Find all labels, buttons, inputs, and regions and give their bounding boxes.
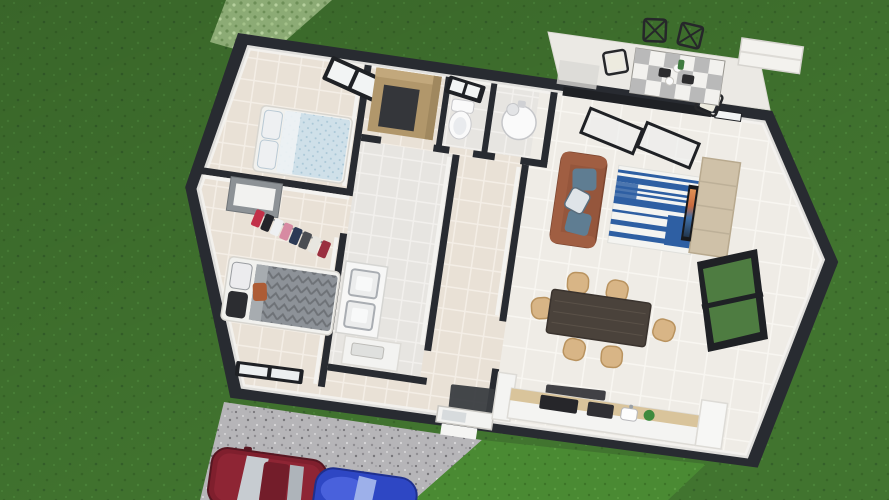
checker-cell bbox=[693, 57, 710, 74]
table-cup bbox=[665, 77, 674, 86]
kitchen-tall-cabinet bbox=[695, 400, 727, 449]
bed2-cushion-orange bbox=[253, 283, 268, 301]
checker-cell bbox=[630, 78, 647, 95]
dining-chair bbox=[600, 346, 623, 369]
floorplan-render bbox=[0, 0, 889, 500]
wardrobe-opening bbox=[378, 85, 420, 132]
bed2-pillow-white bbox=[229, 262, 253, 291]
vanity-sink-1-basin bbox=[355, 276, 373, 292]
table-item-dark bbox=[658, 68, 671, 79]
kitchen-sink bbox=[620, 407, 638, 421]
bed1-pillow-1 bbox=[261, 110, 283, 140]
corner-window bbox=[697, 249, 768, 352]
outdoor-chair-cushion bbox=[607, 54, 624, 71]
checker-cell bbox=[706, 74, 723, 91]
checker-cell bbox=[634, 48, 651, 65]
bed2-pillow-black bbox=[225, 290, 249, 319]
wardrobe bbox=[367, 67, 442, 140]
vanity-sink-2-basin bbox=[351, 307, 369, 323]
rug-block-2 bbox=[614, 181, 638, 202]
table-item-dark bbox=[681, 74, 694, 85]
bed1-pillow-2 bbox=[257, 139, 279, 169]
water-heater-pipe bbox=[517, 100, 526, 108]
checker-cell bbox=[689, 86, 706, 103]
